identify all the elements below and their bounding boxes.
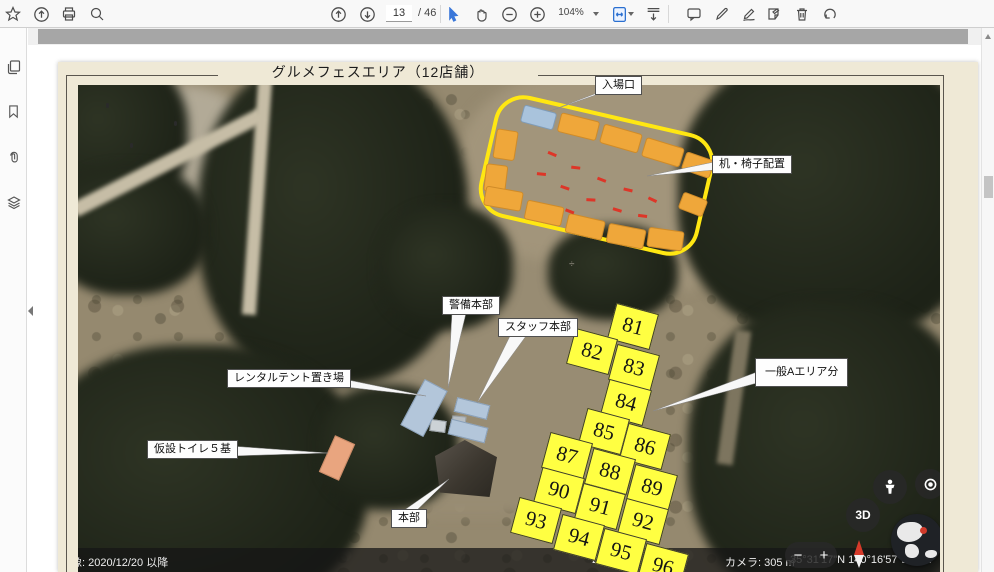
horizontal-scrollbar[interactable] — [28, 28, 981, 45]
share-icon[interactable] — [30, 3, 52, 25]
horizontal-scrollbar-thumb[interactable] — [38, 29, 968, 44]
3d-button[interactable]: 3D — [846, 498, 880, 532]
page-number-input[interactable]: 13 — [386, 5, 412, 22]
fit-page-icon[interactable] — [608, 3, 630, 25]
attachments-icon[interactable] — [3, 146, 24, 167]
layers-icon[interactable] — [3, 191, 24, 212]
my-location-icon[interactable] — [915, 469, 940, 499]
pedestrian-dot — [174, 121, 177, 126]
select-cursor-icon[interactable] — [442, 3, 464, 25]
compass-icon-south[interactable] — [854, 555, 864, 568]
fit-caret-icon[interactable] — [628, 12, 634, 16]
sidebar-collapse-icon[interactable] — [28, 306, 33, 316]
page-title: グルメフェスエリア（12店舗） — [218, 62, 538, 82]
earth-zoom-in[interactable]: + — [820, 547, 829, 564]
globe-continent — [897, 522, 923, 542]
trees — [318, 385, 458, 510]
page-total: / 46 — [418, 7, 436, 19]
building-panel — [429, 419, 447, 433]
trees — [548, 225, 678, 320]
comment-icon[interactable] — [683, 3, 705, 25]
zoom-in-icon[interactable] — [526, 3, 548, 25]
pdf-page: 像: 2020/12/20 以降 20 m カメラ: 305 m 35°31'1… — [58, 62, 978, 572]
bookmarks-icon[interactable] — [3, 101, 24, 122]
globe-continent — [925, 550, 937, 558]
pdf-toolbar: 13 / 46 104% — [0, 0, 994, 28]
trees — [78, 165, 208, 295]
satellite-map: 像: 2020/12/20 以降 20 m カメラ: 305 m 35°31'1… — [78, 85, 940, 572]
page-scroll-icon[interactable] — [642, 3, 664, 25]
sign-icon[interactable] — [738, 3, 760, 25]
pencil-icon[interactable] — [711, 3, 733, 25]
scale-bracket — [618, 558, 630, 566]
sidebar-panel — [0, 28, 27, 572]
redo-icon[interactable] — [819, 3, 841, 25]
toolbar-divider — [668, 5, 669, 23]
print-icon[interactable] — [58, 3, 80, 25]
building-panel — [452, 415, 467, 426]
page-thumbnails-icon[interactable] — [3, 56, 24, 77]
page-up-icon[interactable] — [327, 3, 349, 25]
zoom-level[interactable]: 104% — [552, 7, 590, 18]
zoom-caret-icon[interactable] — [593, 12, 599, 16]
search-icon[interactable] — [86, 3, 108, 25]
annotation-tools-icon[interactable] — [763, 3, 785, 25]
map-scale: 20 m — [592, 554, 616, 566]
compass-icon[interactable] — [854, 540, 864, 555]
globe-continent — [905, 544, 919, 558]
globe-marker — [920, 527, 927, 534]
zoom-out-icon[interactable] — [498, 3, 520, 25]
trash-icon[interactable] — [791, 3, 813, 25]
scroll-up-icon[interactable] — [985, 34, 991, 39]
trees — [378, 205, 513, 330]
globe-icon[interactable] — [891, 514, 940, 566]
pedestrian-dot — [106, 103, 109, 108]
page-down-icon[interactable] — [356, 3, 378, 25]
hand-tool-icon[interactable] — [470, 3, 492, 25]
toolbar-divider — [440, 5, 441, 23]
earth-zoom-out[interactable]: − — [794, 547, 803, 564]
pedestrian-dot — [130, 143, 133, 148]
3d-label: 3D — [855, 508, 870, 522]
vertical-scrollbar[interactable] — [981, 28, 994, 572]
star-icon[interactable] — [2, 3, 24, 25]
vertical-scrollbar-thumb[interactable] — [984, 176, 993, 198]
imagery-date: 像: 2020/12/20 以降 — [78, 554, 168, 570]
pegman-icon[interactable] — [873, 470, 907, 504]
zoom-pill[interactable]: − + — [785, 542, 837, 568]
